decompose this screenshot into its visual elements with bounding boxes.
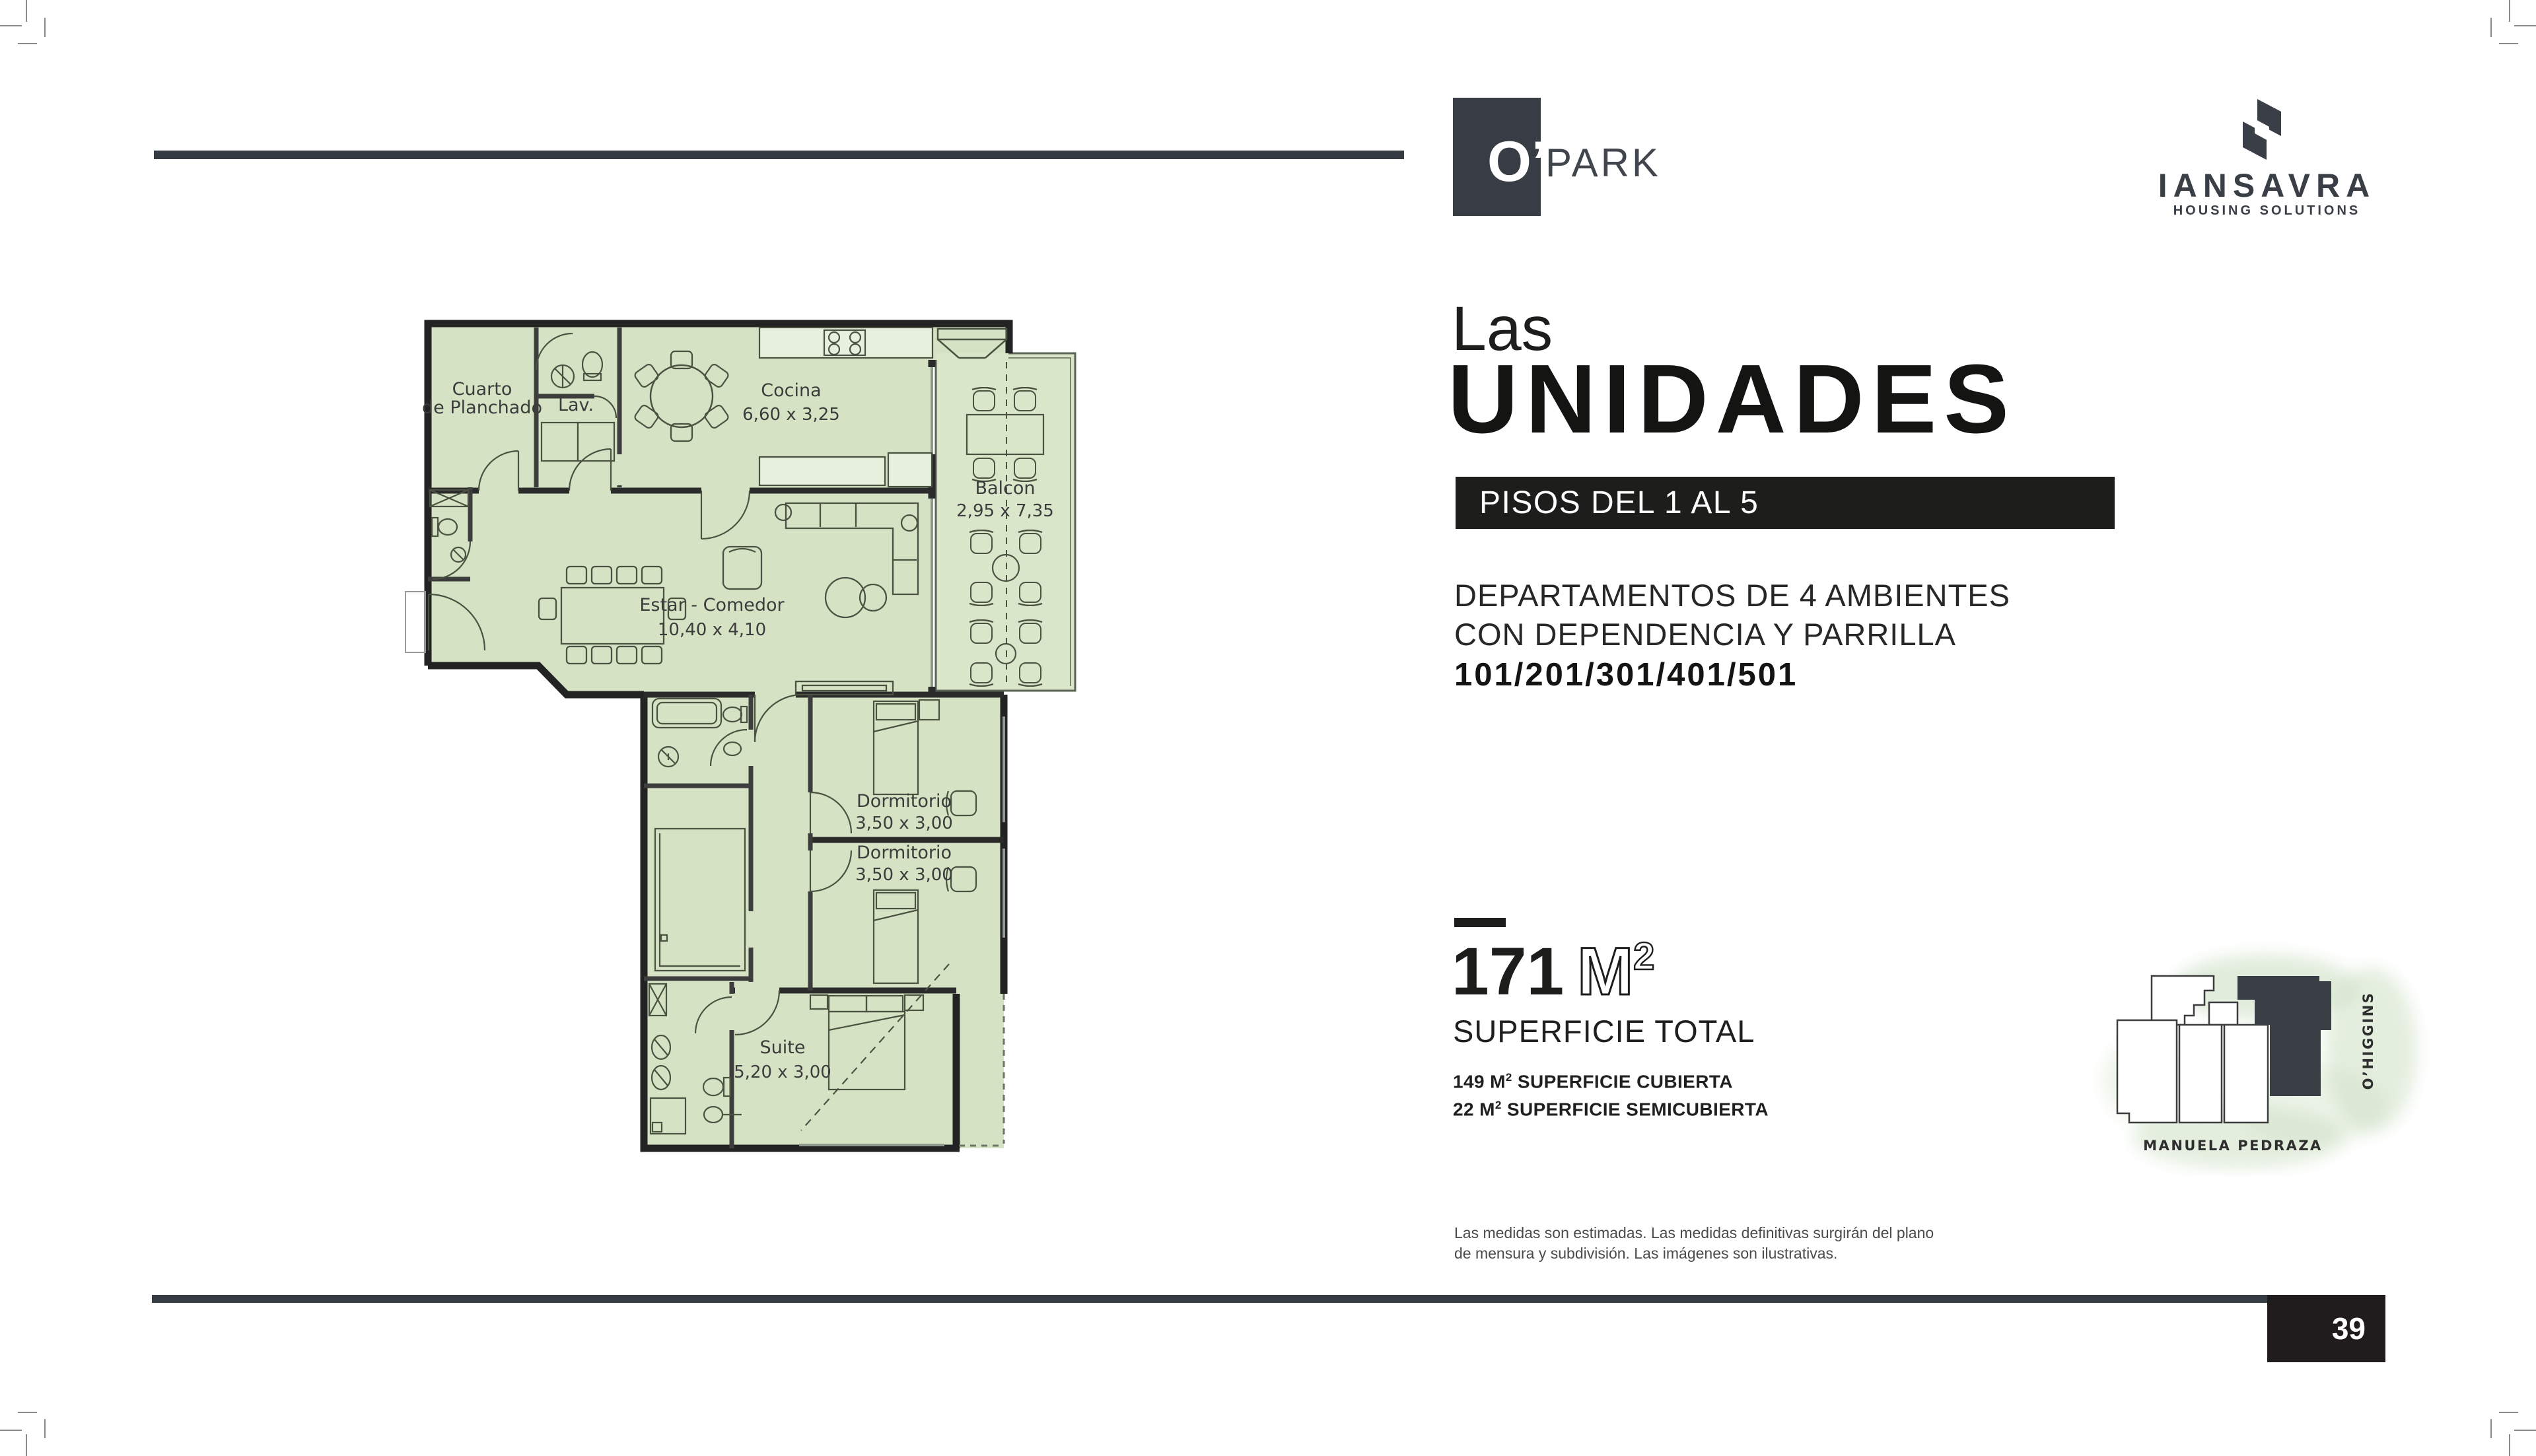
crop-mark: [44, 18, 46, 37]
crop-mark: [2490, 18, 2492, 37]
room-dims: 6,60 x 3,25: [742, 405, 840, 425]
surface-total: 171 M2: [1452, 938, 1654, 1005]
iansavra-logo-icon: [2232, 94, 2292, 166]
room-label: Estar - Comedor: [639, 595, 785, 615]
crop-mark: [44, 1419, 46, 1438]
surface-total-value: 171: [1452, 938, 1564, 1005]
unit-description-line2: CON DEPENDENCIA Y PARRILLA: [1454, 615, 2010, 654]
room-label: de Planchado: [422, 398, 542, 418]
street-manuela-pedraza: MANUELA PEDRAZA: [2143, 1138, 2323, 1154]
crop-mark: [2514, 25, 2536, 26]
surface-total-label: SUPERFICIE TOTAL: [1453, 1013, 1755, 1049]
page-title: UNIDADES: [1448, 343, 2016, 456]
crop-mark: [2499, 43, 2518, 44]
surface-dash: [1454, 918, 1506, 927]
disclaimer: Las medidas son estimadas. Las medidas d…: [1454, 1223, 1934, 1264]
unit-description-line1: DEPARTAMENTOS DE 4 AMBIENTES: [1454, 576, 2010, 615]
crop-mark: [26, 0, 27, 22]
bottom-rule: [152, 1295, 2267, 1303]
iansavra-logo-text: IANSAVRA: [2140, 166, 2394, 205]
page-number-box: 39: [2267, 1295, 2385, 1362]
crop-mark: [0, 1430, 22, 1431]
surface-total-unit: M2: [1577, 938, 1654, 1005]
opark-logo-text: PARK: [1545, 140, 1661, 186]
room-label: Dormitorio: [857, 843, 952, 863]
disclaimer-line1: Las medidas son estimadas. Las medidas d…: [1454, 1223, 1934, 1243]
room-label: Cuarto: [452, 379, 512, 399]
room-dims: 10,40 x 4,10: [658, 620, 766, 640]
surface-semicovered: 22 M2 SUPERFICIE SEMICUBIERTA: [1453, 1093, 1769, 1121]
room-label: Suite: [760, 1037, 806, 1058]
room-dims: 2,95 x 7,35: [956, 501, 1054, 521]
disclaimer-line2: de mensura y subdivisión. Las imágenes s…: [1454, 1243, 1934, 1264]
room-dims: 3,50 x 3,00: [855, 865, 953, 885]
opark-logo-o: O’: [1487, 129, 1547, 195]
crop-mark: [2509, 0, 2510, 22]
surface-breakdown: 149 M2 SUPERFICIE CUBIERTA 22 M2 SUPERFI…: [1453, 1066, 1769, 1122]
location-map: O’HIGGINS MANUELA PEDRAZA: [2087, 938, 2430, 1175]
unit-numbers: 101/201/301/401/501: [1454, 656, 1798, 693]
floors-banner-label: PISOS DEL 1 AL 5: [1456, 485, 1759, 521]
room-dims: 5,20 x 3,00: [734, 1062, 831, 1082]
surface-covered: 149 M2 SUPERFICIE CUBIERTA: [1453, 1066, 1769, 1093]
room-label: Balcon: [975, 478, 1035, 499]
room-label: Dormitorio: [857, 791, 952, 812]
page-number: 39: [2332, 1311, 2385, 1346]
iansavra-logo-tagline: HOUSING SOLUTIONS: [2140, 203, 2394, 219]
brochure-page: { "brand": { "opark": { "o": "O\u2019", …: [0, 0, 2536, 1456]
room-label: Cocina: [761, 380, 821, 401]
floor-plan: Cuartode PlanchadoLav.Cocina6,60 x 3,25B…: [396, 304, 1103, 1175]
street-ohiggins: O’HIGGINS: [2360, 992, 2376, 1090]
crop-mark: [2509, 1434, 2510, 1456]
room-dims: 3,50 x 3,00: [855, 814, 953, 833]
crop-mark: [26, 1434, 27, 1456]
crop-mark: [18, 43, 37, 44]
floors-banner: PISOS DEL 1 AL 5: [1456, 477, 2115, 529]
top-rule: [154, 151, 1404, 159]
crop-mark: [2490, 1419, 2492, 1438]
crop-mark: [0, 25, 22, 26]
crop-mark: [18, 1412, 37, 1413]
crop-mark: [2499, 1412, 2518, 1413]
crop-mark: [2514, 1430, 2536, 1431]
room-label: Lav.: [558, 395, 594, 415]
unit-description: DEPARTAMENTOS DE 4 AMBIENTES CON DEPENDE…: [1454, 576, 2010, 654]
